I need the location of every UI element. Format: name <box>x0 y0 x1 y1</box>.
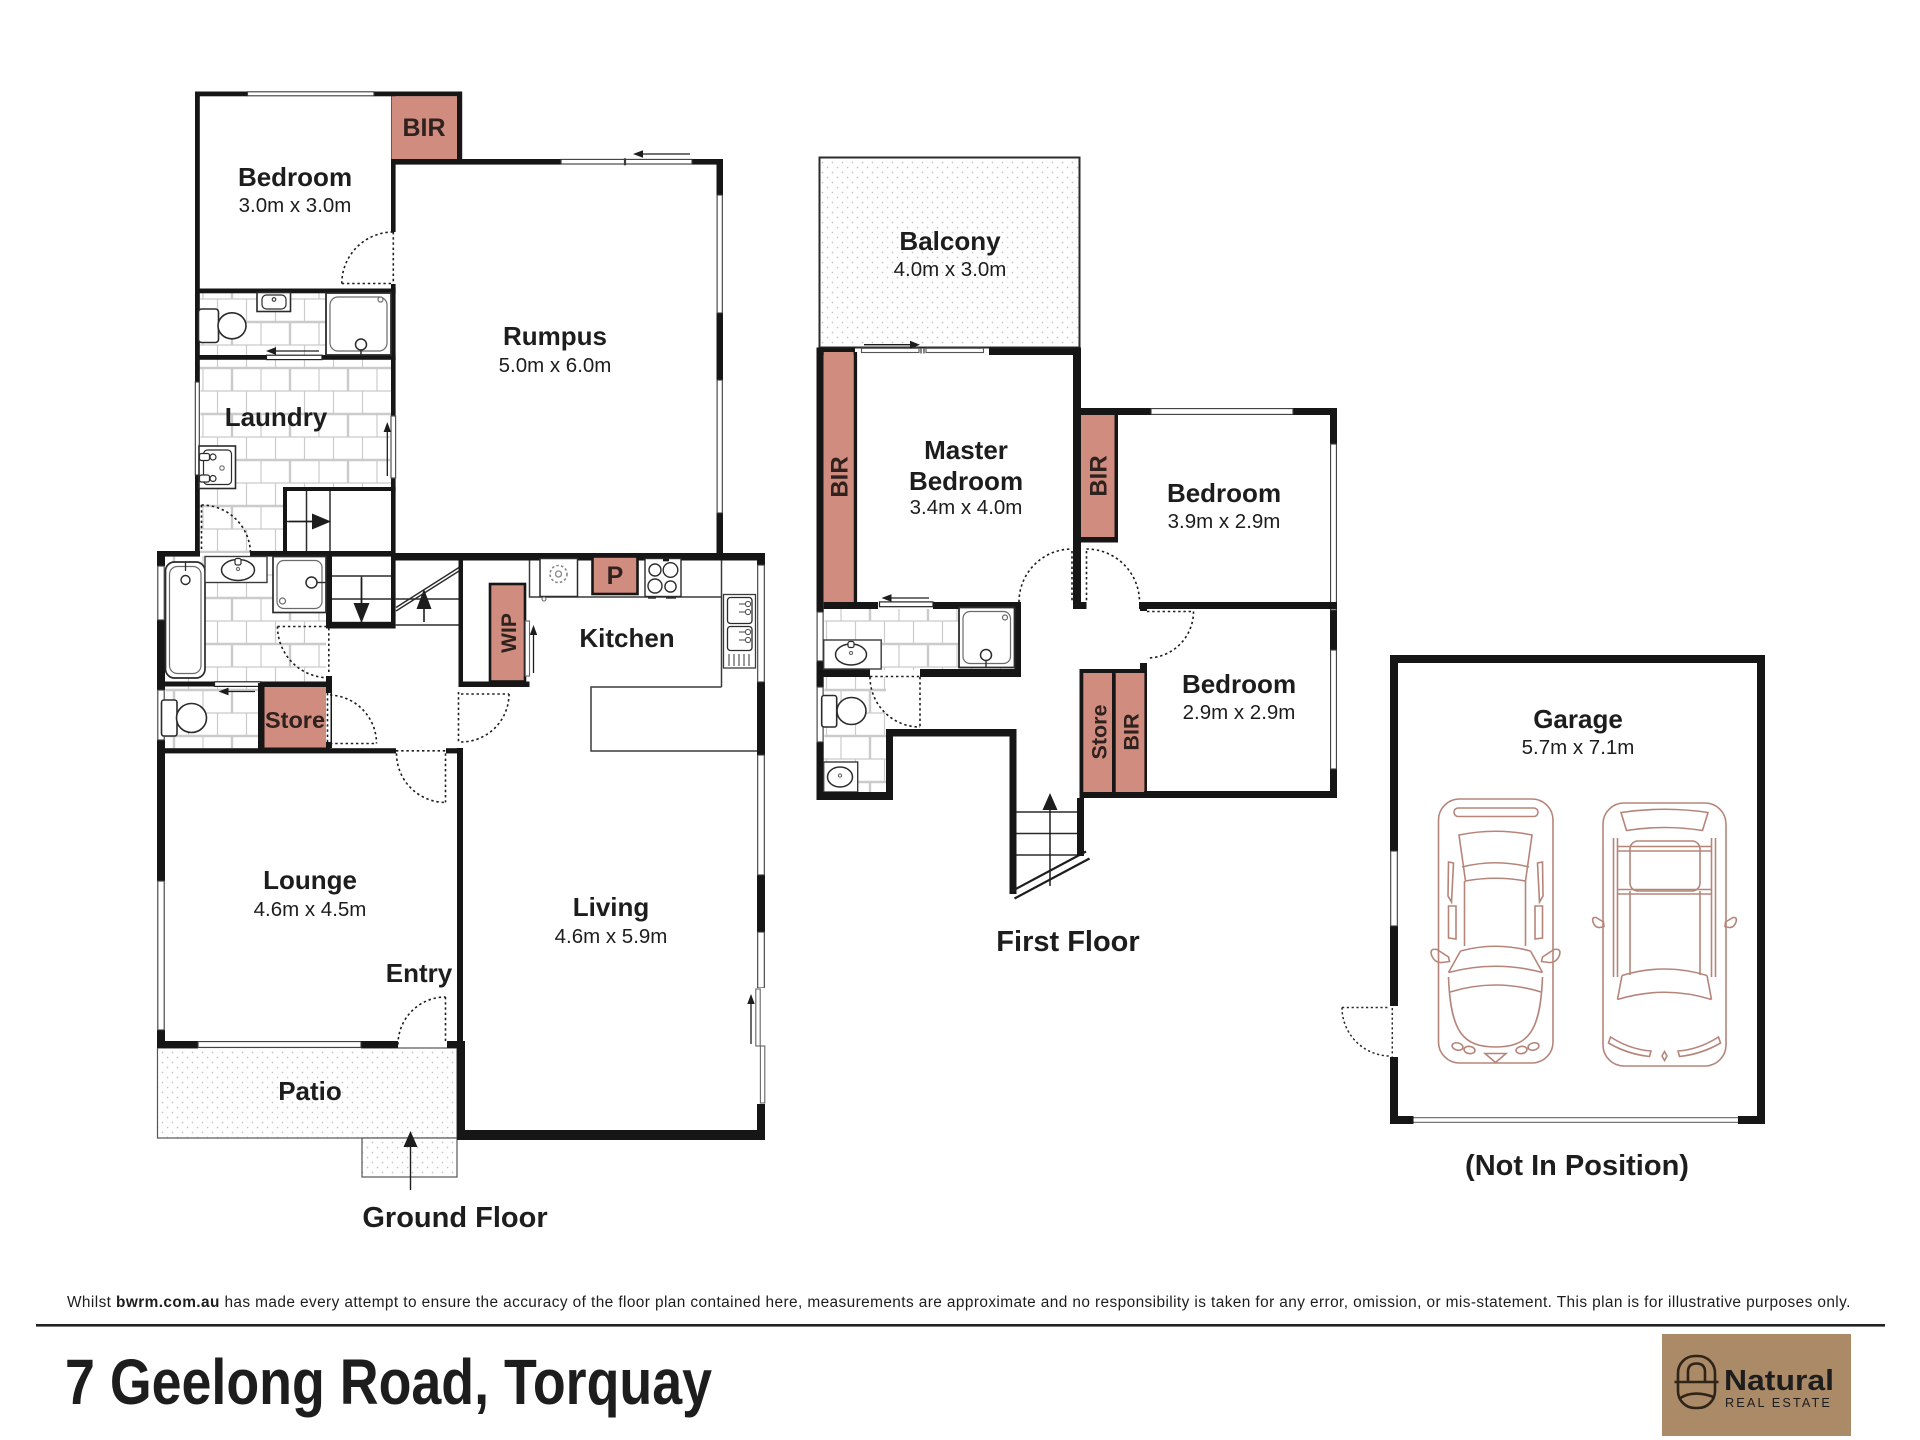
svg-text:Entry: Entry <box>386 958 453 988</box>
svg-text:BIR: BIR <box>1120 713 1144 751</box>
svg-text:3.0m x 3.0m: 3.0m x 3.0m <box>239 194 352 217</box>
svg-text:Store: Store <box>265 707 325 733</box>
svg-text:Natural: Natural <box>1724 1365 1834 1397</box>
svg-text:Kitchen: Kitchen <box>579 623 674 653</box>
svg-text:Laundry: Laundry <box>225 402 328 432</box>
svg-text:Store: Store <box>1088 704 1112 759</box>
svg-text:Living: Living <box>573 892 650 922</box>
svg-text:P: P <box>607 562 624 590</box>
svg-text:BIR: BIR <box>402 114 445 142</box>
svg-text:BIR: BIR <box>1086 455 1113 496</box>
svg-text:Whilst bwrm.com.au has made ev: Whilst bwrm.com.au has made every attemp… <box>67 1294 1851 1311</box>
svg-text:Bedroom: Bedroom <box>909 466 1023 496</box>
svg-text:Patio: Patio <box>278 1076 342 1106</box>
svg-text:Bedroom: Bedroom <box>1167 478 1281 508</box>
svg-text:3.9m x 2.9m: 3.9m x 2.9m <box>1168 510 1281 533</box>
svg-text:Bedroom: Bedroom <box>1182 669 1296 699</box>
svg-text:4.0m x 3.0m: 4.0m x 3.0m <box>894 258 1007 281</box>
svg-text:Master: Master <box>924 435 1008 465</box>
svg-text:(Not In Position): (Not In Position) <box>1465 1150 1689 1182</box>
svg-text:Garage: Garage <box>1533 704 1623 734</box>
svg-text:Bedroom: Bedroom <box>238 162 352 192</box>
svg-text:Lounge: Lounge <box>263 865 357 895</box>
svg-text:2.9m x 2.9m: 2.9m x 2.9m <box>1183 701 1296 724</box>
svg-text:5.7m x 7.1m: 5.7m x 7.1m <box>1522 736 1635 759</box>
svg-text:First Floor: First Floor <box>996 926 1139 958</box>
svg-text:REAL ESTATE: REAL ESTATE <box>1725 1396 1832 1410</box>
svg-text:3.4m x 4.0m: 3.4m x 4.0m <box>910 496 1023 519</box>
svg-text:WIP: WIP <box>498 613 521 653</box>
svg-text:4.6m x 4.5m: 4.6m x 4.5m <box>254 898 367 921</box>
svg-text:Balcony: Balcony <box>899 226 1001 256</box>
svg-text:4.6m x 5.9m: 4.6m x 5.9m <box>555 925 668 948</box>
svg-text:Ground Floor: Ground Floor <box>362 1202 547 1234</box>
svg-text:7 Geelong Road, Torquay: 7 Geelong Road, Torquay <box>65 1346 712 1418</box>
svg-text:BIR: BIR <box>827 456 854 497</box>
svg-text:5.0m x 6.0m: 5.0m x 6.0m <box>499 354 612 377</box>
svg-text:Rumpus: Rumpus <box>503 321 607 351</box>
